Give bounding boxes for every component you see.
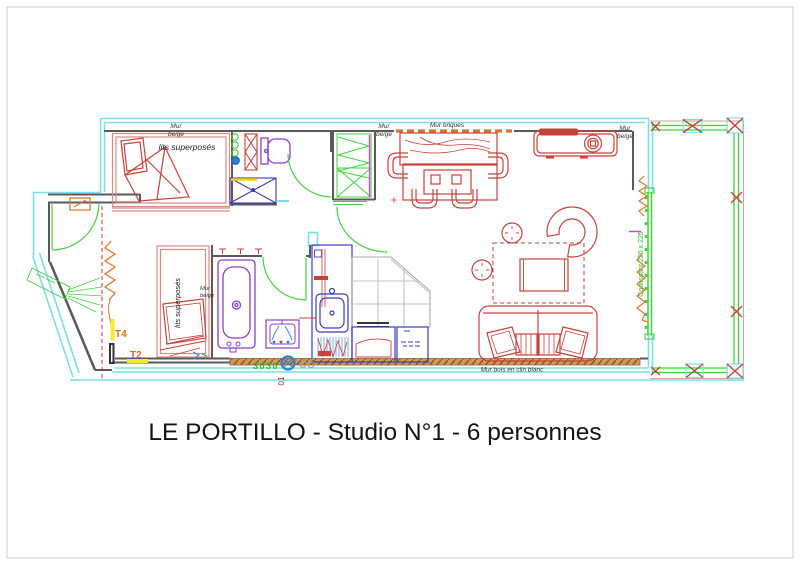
valves [219,249,262,254]
mur-beige-label: Mur [170,123,182,130]
wardrobe [333,134,387,252]
wc-room [230,134,331,203]
bathroom-door-arc [263,257,306,300]
bathroom [218,249,306,352]
coffee-table [520,259,568,291]
t2-label: T2 [130,350,142,361]
vanity-sink [266,320,299,348]
code-green: 3030 [253,361,279,371]
bin [232,157,240,165]
living-area [472,207,597,361]
red-band [314,276,328,280]
wc-cabinet [230,178,276,203]
code-red: 01 [277,376,286,385]
mur-briques-label: Mur briques [430,122,465,129]
banquette [400,133,497,165]
t4-highlight [111,319,115,340]
tv [539,129,578,136]
sliding-door-label: Coulissant 220 x 225 [638,231,645,296]
mur-beige-label: Mur [378,123,390,130]
dining-table [403,164,497,200]
bed-left [157,246,209,359]
sofa [479,306,597,361]
balcony [650,118,744,379]
rug [493,243,584,303]
mur-beige-label: Mur [619,125,631,132]
page-title: LE PORTILLO - Studio N°1 - 6 personnes [148,419,601,446]
kitchen-sink [316,289,348,333]
bathtub [218,260,255,352]
floor-plan-drawing: T4 T2 [0,0,800,565]
page-border [7,7,793,558]
svg-text:beige: beige [168,131,184,138]
armchair [547,207,597,257]
railing-posts [651,118,743,378]
mur-bois-label: Mur bois en clin blanc [481,367,545,374]
bunk-beds-label: lits superposés [159,142,216,152]
marker-cross [391,197,397,203]
kitchen-base-units [352,327,428,362]
svg-text:beige: beige [200,293,215,299]
bunk-beds-label: lits superposés [173,278,182,328]
svg-text:beige: beige [617,133,633,140]
mur-beige-label: Mur [200,286,211,292]
svg-text:beige: beige [376,131,392,138]
radiator [105,241,115,300]
railing [652,126,739,373]
door-handle [70,198,90,210]
floor-plan-page: T4 T2 [0,0,800,565]
shelf-unit [245,134,257,170]
toilet [261,138,290,164]
kitchen [299,245,430,362]
dining-area [388,133,508,208]
counter [352,257,430,327]
wc-door-arc [288,154,331,197]
t4-label: T4 [115,329,127,340]
tv-console [534,129,617,158]
speaker [585,135,602,152]
